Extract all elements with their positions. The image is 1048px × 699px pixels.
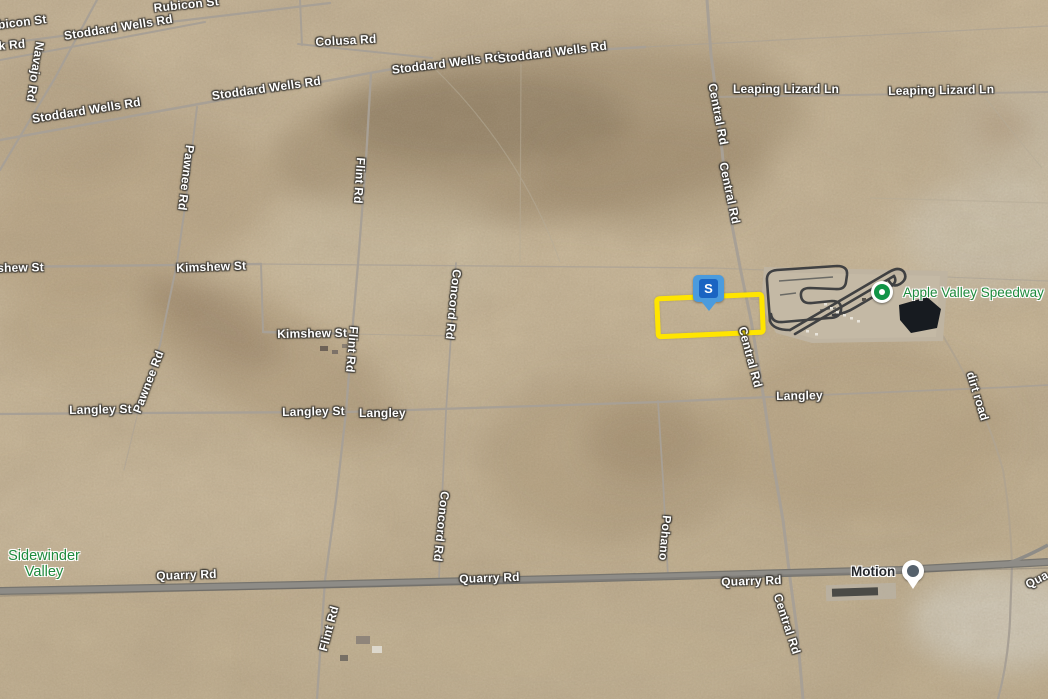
road-label-k-rd-partial: k Rd [0,37,26,53]
road-label-langley-1: Langley [359,406,406,420]
subject-property-pin[interactable]: S [693,275,724,302]
road-label-kimshew-2: Kimshew St [277,326,347,341]
road-label-langley-2: Langley [776,388,823,403]
sidewinder-line2: Valley [25,564,63,580]
poi-label-motion[interactable]: Motion [851,564,895,579]
subject-property-pin-letter: S [699,279,718,298]
sidewinder-line1: Sidewinder [8,548,80,564]
road-label-leaping-lizard-2: Leaping Lizard Ln [888,82,994,98]
road-label-quarry-2: Quarry Rd [459,570,520,586]
motion-marker[interactable] [902,560,924,582]
road-label-kimshew-partial: shew St [0,260,44,275]
place-label-sidewinder-valley: Sidewinder Valley [2,549,86,580]
apple-valley-speedway-marker[interactable] [871,281,893,303]
road-label-langley-st-2: Langley St [282,404,345,419]
road-label-langley-st-1: Langley St [69,402,132,417]
speedway-track [761,266,948,343]
marker-center-dot [879,289,885,295]
motion-marker-dot [907,565,919,577]
poi-label-apple-valley-speedway[interactable]: Apple Valley Speedway [903,285,1044,300]
satellite-map-canvas[interactable]: Rubicon St bicon St k Rd Stoddard Wells … [0,0,1048,699]
road-label-leaping-lizard-1: Leaping Lizard Ln [733,82,839,96]
road-label-kimshew-1: Kimshew St [176,259,246,275]
road-label-quarry-1: Quarry Rd [156,567,217,583]
road-label-quarry-3: Quarry Rd [721,573,782,589]
